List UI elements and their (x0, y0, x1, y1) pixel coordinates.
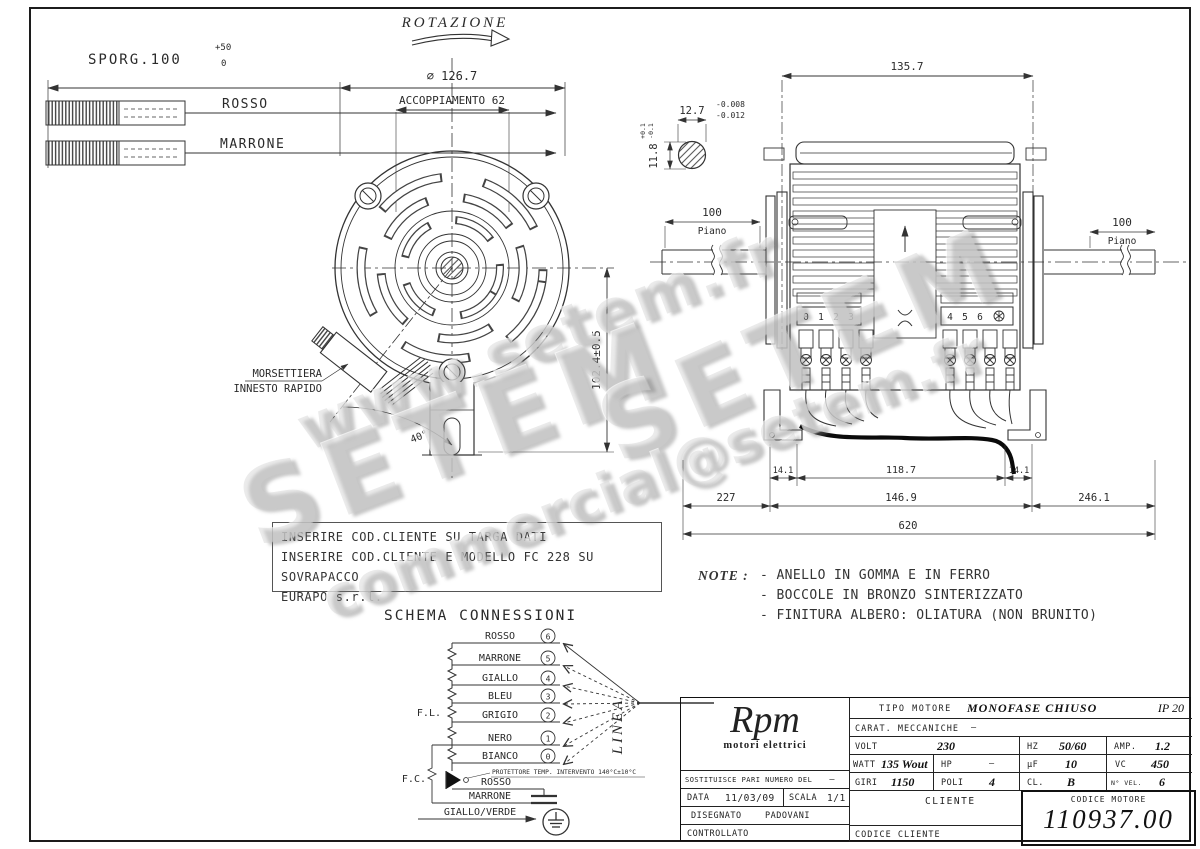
tb-divider (933, 755, 934, 773)
tb-divider (1106, 737, 1107, 755)
shaft-height-tol-lower: -0.1 (647, 123, 655, 139)
schema-wire-number: 6 (546, 633, 551, 642)
cl-value: B (1067, 775, 1075, 790)
schema-wire-label: GIALLO (482, 673, 518, 684)
notes-label: NOTE : (698, 566, 749, 586)
tb-divider (783, 789, 784, 807)
schema-wire-number: 1 (546, 735, 551, 744)
length-dim: 135.7 (890, 60, 923, 73)
tb-divider (1019, 773, 1020, 791)
client-instruction-line: EURAPO s.r.l. (281, 587, 653, 607)
protector-label: PROTETTORE TEMP. INTERVENTO 140°C±10°C (492, 768, 636, 776)
schema-wire-label: ROSSO (485, 631, 515, 642)
tb-divider (1106, 755, 1107, 773)
codice-cliente-label: CODICE CLIENTE (855, 830, 941, 840)
tb-row-giri: GIRI 1150 POLI 4 CL. B N° VEL. 6 (849, 772, 1192, 790)
note-item: - FINITURA ALBERO: OLIATURA (NON BRUNITO… (760, 606, 1128, 626)
client-instruction-box: INSERIRE COD.CLIENTE SU TARGA DATI INSER… (272, 522, 662, 592)
terminal-block-connector (309, 324, 386, 393)
schema-wire-number: 0 (546, 753, 551, 762)
note-item: - BOCCOLE IN BRONZO SINTERIZZATO (760, 586, 1128, 606)
giri-label: GIRI (855, 778, 877, 788)
mid-dim: 246.1 (1078, 492, 1110, 504)
terminal-number: 1 (818, 312, 824, 323)
shaft-height-tol-upper: +0.1 (639, 123, 647, 139)
screw-boss-top-right (523, 183, 549, 209)
terminal-number: 4 (947, 312, 953, 323)
sporg-tol-zero: 0 (221, 59, 226, 69)
shaft-height-dim: 11.8 (648, 143, 660, 168)
title-block: Rpm motori elettrici SOSTITUISCE PARI NU… (680, 697, 1191, 841)
terminal-wires (806, 390, 1012, 428)
morsettiera-label-1: MORSETTIERA (252, 368, 322, 380)
ip-value: IP 20 (1158, 701, 1184, 716)
terminal-number: 2 (833, 312, 839, 323)
amp-value: 1.2 (1155, 739, 1170, 754)
cliente-label: CLIENTE (925, 796, 976, 807)
earth-wire-label: GIALLO/VERDE (444, 807, 516, 818)
hz-label: HZ (1027, 742, 1038, 752)
tb-row-codice-cliente: CODICE CLIENTE (849, 825, 1021, 843)
tb-divider (933, 773, 934, 791)
uf-value: 10 (1065, 757, 1077, 772)
flat-right-label: Piano (1108, 236, 1137, 247)
flat-right-dim: 100 (1112, 216, 1132, 229)
earth-symbol-icon (543, 809, 569, 835)
tb-row-data-scala: DATA 11/03/09 SCALA 1/1 (681, 788, 849, 806)
vc-value: 450 (1151, 757, 1169, 772)
tipo-label: TIPO MOTORE (879, 704, 952, 714)
hp-value: — (989, 759, 995, 769)
codice-motore-box: CODICE MOTORE 110937.00 (1021, 790, 1196, 846)
diameter-dim: ⌀ 126.7 (427, 69, 478, 83)
scala-value: 1/1 (827, 793, 846, 804)
sporg-tol-plus: +50 (215, 43, 231, 53)
sporg-dim-label: SPORG.100 (88, 52, 182, 68)
logo-text: Rpm (681, 700, 849, 740)
wire-label-rosso: ROSSO (222, 97, 269, 112)
tipo-value: MONOFASE CHIUSO (967, 701, 1097, 716)
tb-row-watt: WATT 135 Wout HP — µF 10 VC 450 (849, 754, 1192, 772)
side-view-drawing: 135.7 0 1 2 3 4 5 6 (650, 60, 1188, 540)
schema-wire-number: 4 (546, 675, 551, 684)
uf-label: µF (1027, 760, 1038, 770)
mid-dim: 227 (717, 492, 736, 504)
client-instruction-line: INSERIRE COD.CLIENTE SU TARGA DATI (281, 527, 653, 547)
shaft-section-detail: 12.7 -0.008 -0.012 11.8 +0.1 -0.1 (639, 100, 745, 169)
nvel-value: 6 (1159, 775, 1165, 790)
tb-divider (1019, 755, 1020, 773)
tb-row-sostituisce: SOSTITUISCE PARI NUMERO DEL — (681, 770, 849, 788)
schema-wire-label: NERO (488, 733, 512, 744)
foot-dim: 118.7 (886, 465, 916, 476)
terminal-number: 0 (803, 312, 809, 323)
tb-row-volt: VOLT 230 HZ 50/60 AMP. 1.2 (849, 736, 1192, 754)
codice-motore-number: 110937.00 (1023, 804, 1194, 835)
terminal-number: 6 (977, 312, 983, 323)
terminal-clamps (799, 330, 1017, 390)
front-view-drawing: ⌀ 126.7 ACCOPPIAMENTO 62 (233, 58, 614, 478)
schema-wire-number: 2 (546, 712, 551, 721)
thermal-protector-icon (446, 771, 461, 789)
disegnato-label: DISEGNATO (691, 811, 742, 821)
technical-drawing-sheet: SPORG.100 +50 0 ROSSO MARRONE ROTAZIONE … (0, 0, 1200, 849)
disegnato-value: PADOVANI (765, 811, 810, 821)
angle-dim: 40° (409, 429, 430, 446)
shaft-width-tol-upper: -0.008 (716, 100, 745, 109)
controllato-label: CONTROLLATO (687, 829, 749, 839)
hz-value: 50/60 (1059, 739, 1086, 754)
mid-dim: 146.9 (885, 492, 917, 504)
data-label: DATA (687, 793, 709, 803)
overall-dim: 620 (899, 520, 918, 532)
cl-label: CL. (1027, 778, 1044, 788)
schema-wire-label: MARRONE (479, 653, 521, 664)
watt-label: WATT (853, 760, 875, 770)
mounting-clevis (422, 382, 482, 455)
rotation-arrow-icon (491, 30, 509, 46)
tb-row-disegnato: DISEGNATO PADOVANI (681, 806, 849, 824)
cap-wire-bottom-label: MARRONE (469, 791, 511, 802)
foot-dim: 14.1 (1009, 466, 1029, 476)
shaft-width-dim: 12.7 (679, 105, 704, 117)
tb-row-tipo: TIPO MOTORE MONOFASE CHIUSO IP 20 (849, 698, 1192, 718)
shaft-width-tol-lower: -0.012 (716, 111, 745, 120)
volt-label: VOLT (855, 742, 877, 752)
tb-divider (1106, 773, 1107, 791)
wire-bundle (377, 355, 435, 406)
flat-left-dim: 100 (702, 206, 722, 219)
schema-wire-label: GRIGIO (482, 710, 518, 721)
wire-label-marrone: MARRONE (220, 137, 285, 152)
flat-left-label: Piano (698, 226, 727, 237)
client-instruction-line: INSERIRE COD.CLIENTE E MODELLO FC 228 SU… (281, 547, 653, 587)
tb-row-carat: CARAT. MECCANICHE — (849, 718, 1192, 736)
fl-label: F.L. (417, 708, 441, 719)
schema-wire-number: 5 (546, 655, 551, 664)
rotation-indicator: ROTAZIONE (401, 15, 509, 46)
notes-section: NOTE : - ANELLO IN GOMMA E IN FERRO - BO… (698, 566, 1128, 626)
volt-value: 230 (937, 739, 955, 754)
winding-symbol (448, 643, 456, 771)
nvel-label: N° VEL. (1111, 779, 1142, 787)
sostituisce-label: SOSTITUISCE PARI NUMERO DEL (685, 776, 812, 784)
scala-label: SCALA (789, 793, 817, 803)
schema-wires: ROSSO 6 MARRONE 5 GIALLO 4 BLEU 3 GRIGIO… (452, 629, 560, 763)
carat-value: — (971, 723, 977, 733)
screw-boss-bottom (439, 359, 465, 385)
fc-label: F.C. (402, 774, 426, 785)
carat-label: CARAT. MECCANICHE (855, 724, 959, 734)
screw-boss-top-left (355, 183, 381, 209)
tb-divider (1019, 737, 1020, 755)
hp-label: HP (941, 760, 952, 770)
terminal-number: 3 (848, 312, 854, 323)
rotation-label: ROTAZIONE (401, 15, 509, 31)
cap-wire-top-label: ROSSO (481, 777, 511, 788)
watt-value: 135 Wout (881, 757, 928, 772)
linea-label: LINEA (610, 698, 626, 756)
note-item: - ANELLO IN GOMMA E IN FERRO (760, 566, 1128, 586)
schema-wire-number: 3 (546, 693, 551, 702)
tb-row-controllato: CONTROLLATO (681, 824, 849, 842)
sostituisce-value: — (829, 775, 835, 785)
poli-value: 4 (989, 775, 995, 790)
data-value: 11/03/09 (725, 793, 775, 804)
height-dim: 102.4±0.5 (590, 330, 603, 390)
codice-motore-label: CODICE MOTORE (1023, 795, 1194, 804)
logo-subtext: motori elettrici (681, 740, 849, 751)
giri-value: 1150 (891, 775, 914, 790)
schema-wire-label: BLEU (488, 691, 512, 702)
terminal-number: 5 (962, 312, 968, 323)
amp-label: AMP. (1114, 742, 1136, 752)
poli-label: POLI (941, 778, 963, 788)
morsettiera-label-2: INNESTO RAPIDO (233, 383, 322, 395)
connection-schema: SCHEMA CONNESSIONI ROSSO 6 MARRONE 5 GIA… (384, 608, 714, 835)
manufacturer-logo: Rpm motori elettrici (681, 700, 849, 751)
schema-wire-label: BIANCO (482, 751, 518, 762)
vc-label: VC (1115, 760, 1126, 770)
foot-dim: 14.1 (773, 466, 793, 476)
schema-title: SCHEMA CONNESSIONI (384, 608, 577, 624)
coupling-dim: ACCOPPIAMENTO 62 (399, 94, 505, 107)
